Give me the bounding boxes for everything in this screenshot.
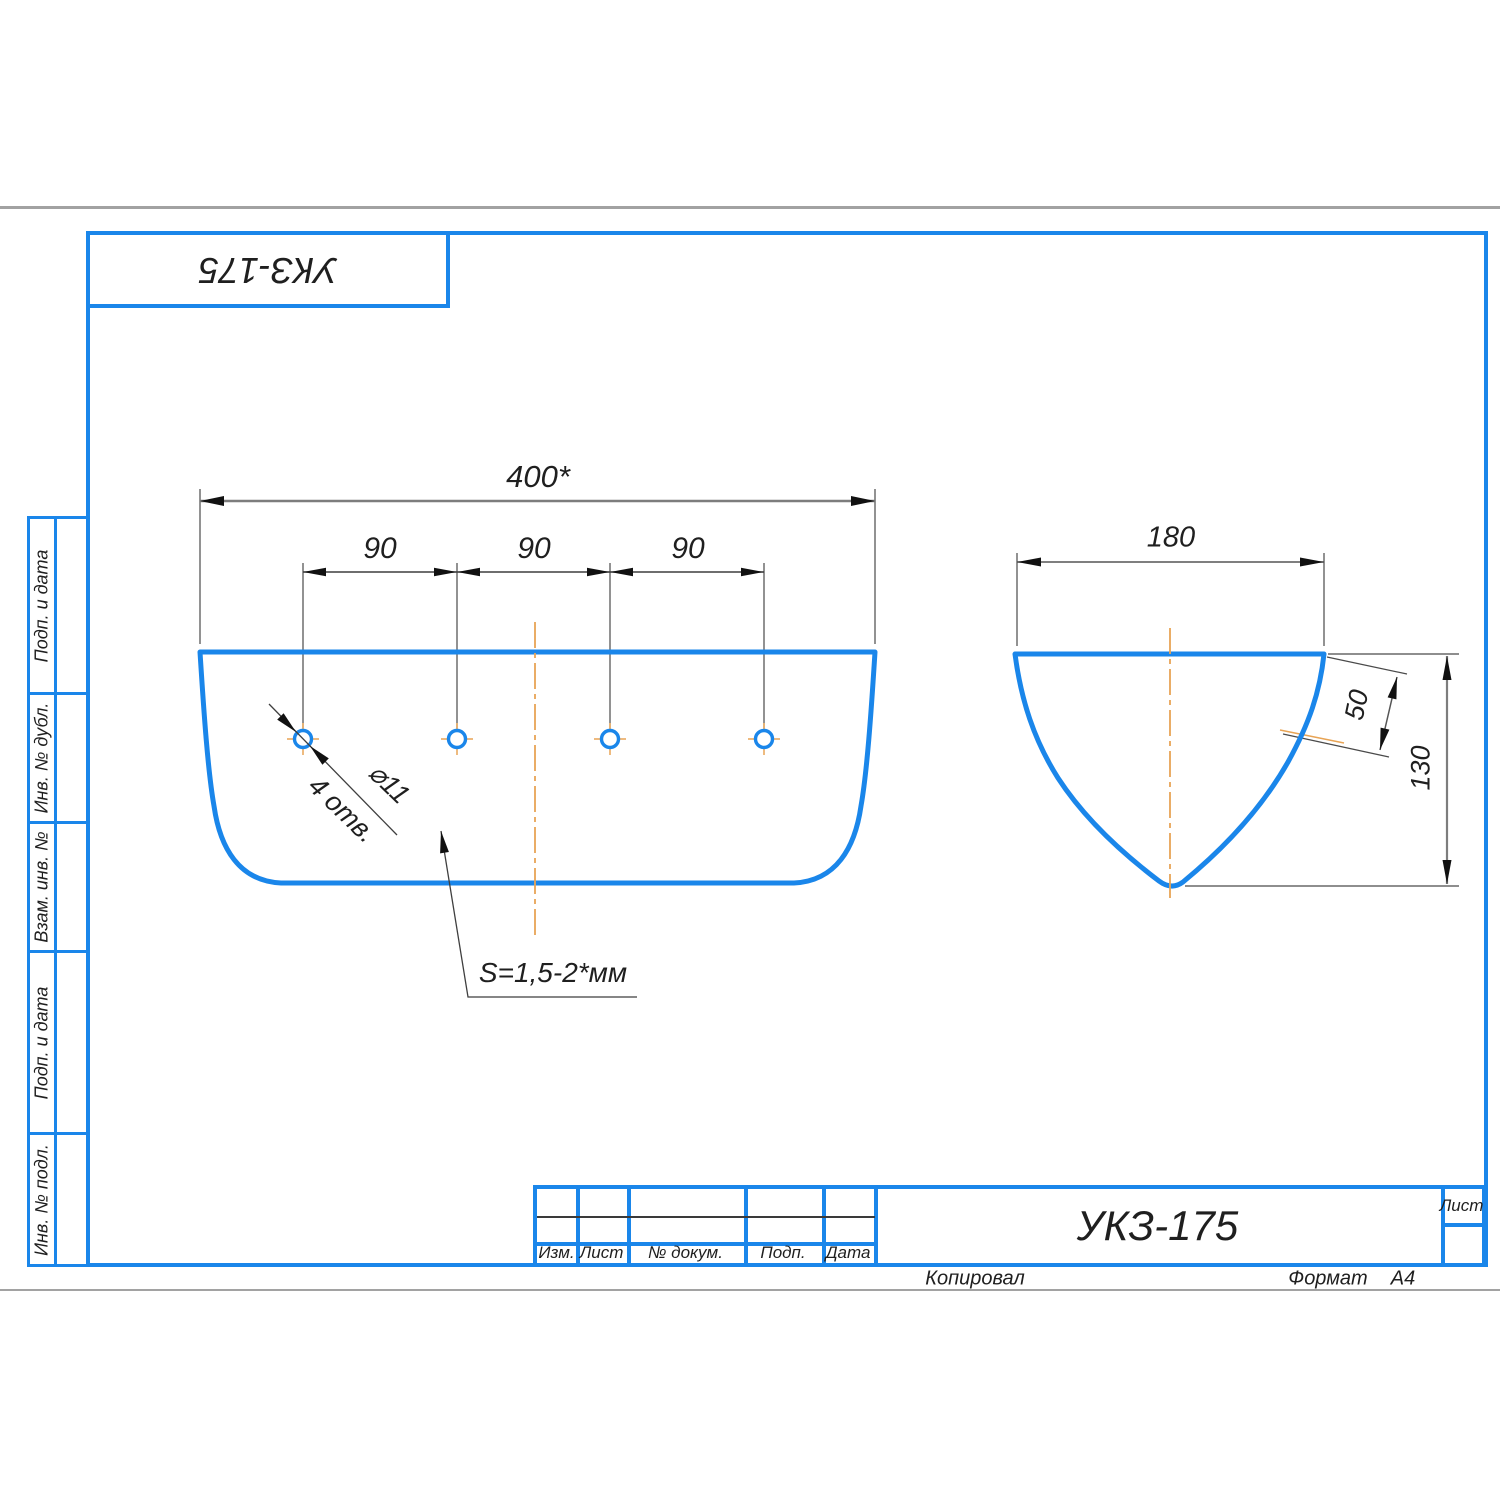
dim-130-label: 130 — [1406, 745, 1437, 790]
side-gauge-line — [1280, 730, 1344, 743]
col-docnum-label: № докум. — [627, 1243, 744, 1263]
dim-90-lines — [303, 568, 764, 576]
dim-400-label: 400* — [506, 459, 570, 495]
format-value: А4 — [1391, 1268, 1415, 1291]
title-block: Изм. Лист № докум. Подп. Дата УКЗ-175 Ли… — [533, 1185, 1486, 1267]
front-view-outline — [200, 652, 875, 883]
drawing-sheet: { "colors": { "outline_blue": "#1a86ea",… — [0, 0, 1500, 1500]
thickness-label: S=1,5-2*мм — [479, 957, 627, 989]
title-block-row-line — [537, 1216, 875, 1218]
dim-90-label-2: 90 — [517, 532, 550, 566]
col-podp-label: Подп. — [744, 1243, 822, 1263]
side-view — [1015, 553, 1459, 898]
dim-50-label: 50 — [1339, 687, 1376, 723]
col-list-label: Лист — [576, 1243, 627, 1263]
dim-180-label: 180 — [1147, 522, 1195, 555]
document-number: УКЗ-175 — [874, 1189, 1441, 1263]
dim-90-label-3: 90 — [671, 532, 704, 566]
col-data-label: Дата — [822, 1243, 874, 1263]
col-izm-label: Изм. — [537, 1243, 576, 1263]
hole-extension-lines — [303, 563, 764, 730]
hole-4 — [748, 723, 780, 755]
dim-400-lines — [200, 489, 875, 644]
hole-2 — [441, 723, 473, 755]
holes — [287, 723, 780, 755]
copied-by-label: Копировал — [925, 1268, 1024, 1291]
format-label: Формат — [1288, 1268, 1367, 1291]
dim-90-label-1: 90 — [363, 532, 396, 566]
drawing-canvas — [0, 0, 1500, 1500]
hole-3 — [594, 723, 626, 755]
sheet-cell-divider — [1441, 1223, 1482, 1227]
sheet-label: Лист — [1441, 1189, 1482, 1223]
